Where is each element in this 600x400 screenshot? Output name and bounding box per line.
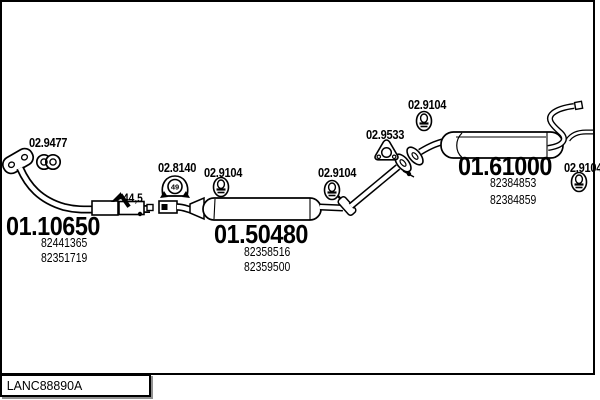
part-number-rear-muffler-1: 82384853 bbox=[490, 176, 536, 189]
center-muffler-drawing bbox=[203, 198, 321, 220]
gasket-icon bbox=[375, 140, 398, 160]
clamp-icon bbox=[37, 155, 60, 169]
mid-connector bbox=[159, 201, 177, 213]
part-number-front-pipe-2: 82351719 bbox=[41, 251, 87, 264]
catalog-code: LANC88890A bbox=[2, 376, 142, 395]
hanger-ring-icon-4 bbox=[572, 173, 587, 192]
part-code-hanger-4: 02.9104 bbox=[564, 161, 600, 174]
part-code-hanger-2: 02.9104 bbox=[318, 166, 356, 179]
dimension-annotation: 44,5 bbox=[111, 192, 146, 204]
part-code-hanger-1: 02.9104 bbox=[204, 166, 242, 179]
dimension-label: 44,5 bbox=[123, 192, 143, 204]
tailpipe-tip bbox=[575, 101, 583, 109]
dimension-marker-square bbox=[147, 205, 153, 211]
part-code-clamp: 02.9477 bbox=[29, 136, 67, 149]
rubber-mount-icon: 49 bbox=[160, 176, 190, 198]
part-code-gasket: 02.9533 bbox=[366, 128, 404, 141]
catalog-code-box: LANC88890A bbox=[0, 374, 151, 397]
hanger-ring-icon-1 bbox=[214, 178, 229, 197]
part-number-front-pipe-1: 82441365 bbox=[41, 236, 87, 249]
hanger-ring-icon-2 bbox=[325, 181, 340, 200]
mid-inlet-pipe bbox=[177, 198, 204, 219]
mid-outlet-pipe bbox=[320, 207, 343, 208]
hanger-ring-icon-3 bbox=[417, 112, 432, 131]
part-number-center-muffler-1: 82358516 bbox=[244, 245, 290, 258]
part-number-center-muffler-2: 82359500 bbox=[244, 260, 290, 273]
part-number-rear-muffler-2: 82384859 bbox=[490, 193, 536, 206]
part-code-hanger-3: 02.9104 bbox=[408, 98, 446, 111]
intermediate-pipe bbox=[351, 167, 398, 206]
dimension-arrow-icon bbox=[111, 192, 122, 203]
mount-mark-text: 49 bbox=[171, 183, 179, 192]
exhaust-parts-diagram: 49 bbox=[0, 0, 600, 400]
part-code-rubber-mount: 02.8140 bbox=[158, 161, 196, 174]
hanger-bracket bbox=[568, 132, 593, 140]
